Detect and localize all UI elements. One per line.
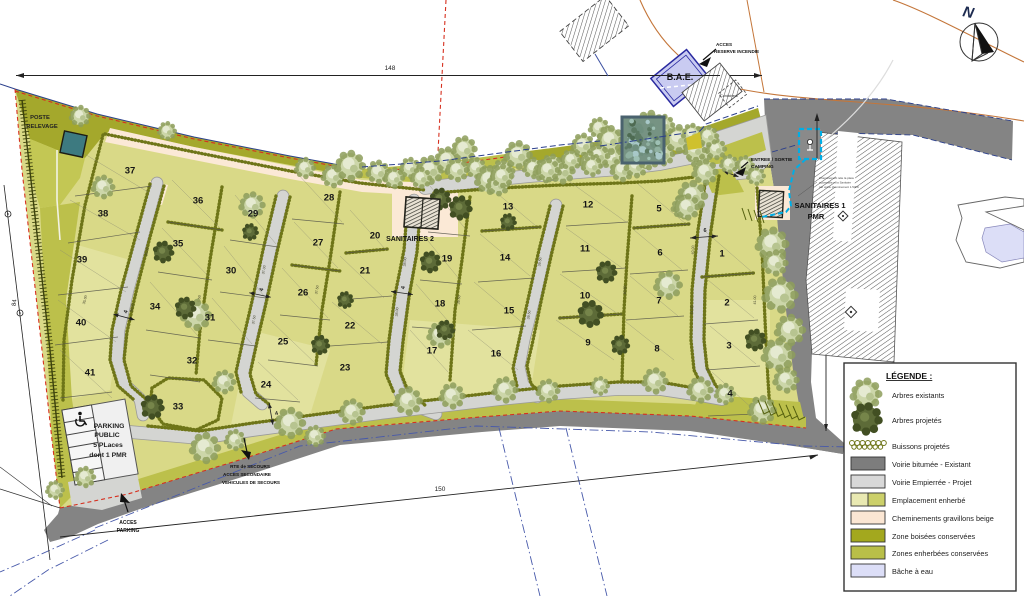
svg-text:Zones enherbées conservées: Zones enherbées conservées (892, 549, 988, 558)
svg-text:accessible et la Sanitaire: accessible et la Sanitaire (819, 181, 851, 185)
svg-text:21: 21 (360, 266, 371, 277)
svg-text:SANITAIRES 1: SANITAIRES 1 (794, 201, 845, 210)
svg-text:40.00: 40.00 (691, 245, 695, 254)
svg-text:Arbres existants: Arbres existants (892, 391, 945, 400)
svg-text:Buissons projetés: Buissons projetés (892, 442, 950, 451)
svg-text:PARKING: PARKING (94, 423, 125, 430)
svg-text:Bâche à eau: Bâche à eau (892, 567, 933, 576)
svg-text:38: 38 (98, 209, 109, 220)
svg-text:40: 40 (76, 318, 87, 329)
svg-text:32: 32 (187, 356, 198, 367)
svg-text:ENTREE / SORTIE: ENTREE / SORTIE (751, 157, 793, 163)
svg-text:36: 36 (193, 196, 204, 207)
svg-text:B.A.E.: B.A.E. (667, 72, 694, 82)
svg-text:Voirie Empierrée - Projet: Voirie Empierrée - Projet (892, 478, 972, 487)
svg-text:ACCES SECONDAIRE: ACCES SECONDAIRE (223, 472, 271, 477)
svg-text:5: 5 (656, 204, 662, 215)
svg-text:Containers: Containers (720, 94, 738, 98)
svg-text:41.00: 41.00 (753, 295, 757, 304)
svg-text:2: 2 (724, 298, 729, 309)
svg-text:dont 1 PMR: dont 1 PMR (89, 452, 126, 459)
svg-text:Voirie bitumée - Existant: Voirie bitumée - Existant (892, 460, 971, 469)
svg-text:22: 22 (345, 321, 356, 332)
svg-text:Emplacement enherbé: Emplacement enherbé (892, 496, 965, 505)
svg-text:SANITAIRES 2: SANITAIRES 2 (386, 236, 434, 243)
svg-text:LÉGENDE :: LÉGENDE : (886, 371, 932, 381)
svg-text:30: 30 (226, 266, 237, 277)
svg-text:4: 4 (727, 389, 733, 400)
svg-text:PMR: PMR (808, 212, 825, 221)
svg-text:19: 19 (442, 254, 453, 265)
svg-text:17: 17 (427, 346, 438, 357)
svg-text:28: 28 (324, 193, 335, 204)
svg-text:RESERVE INCENDIE: RESERVE INCENDIE (714, 49, 759, 54)
svg-text:3: 3 (726, 341, 731, 352)
svg-text:24: 24 (261, 380, 272, 391)
svg-text:Arbres projetés: Arbres projetés (892, 416, 942, 425)
svg-text:ACCES: ACCES (716, 42, 732, 47)
svg-text:25: 25 (278, 337, 289, 348)
svg-text:ACCES: ACCES (119, 520, 137, 526)
svg-text:23: 23 (340, 363, 351, 374)
svg-text:31: 31 (205, 313, 216, 324)
svg-text:VEHICULES DE SECOURS: VEHICULES DE SECOURS (222, 480, 280, 485)
svg-text:PUBLIC: PUBLIC (94, 432, 119, 439)
svg-text:Cheminement relie la place: Cheminement relie la place (819, 176, 854, 180)
svg-text:41.00: 41.00 (690, 305, 694, 314)
svg-text:38.00: 38.00 (395, 307, 400, 316)
svg-text:CAMPING: CAMPING (751, 164, 774, 170)
svg-text:9: 9 (585, 338, 590, 349)
svg-text:26: 26 (298, 288, 309, 299)
svg-text:18: 18 (435, 299, 446, 310)
svg-text:29: 29 (248, 209, 259, 220)
svg-text:Zone boisées conservées: Zone boisées conservées (892, 532, 976, 541)
svg-text:16: 16 (491, 349, 502, 360)
svg-text:6: 6 (703, 228, 706, 234)
svg-text:41: 41 (85, 368, 96, 379)
svg-text:7: 7 (656, 296, 661, 307)
svg-text:27: 27 (313, 238, 324, 249)
svg-text:14: 14 (500, 253, 511, 264)
svg-text:10: 10 (580, 291, 591, 302)
svg-text:8: 8 (654, 344, 659, 355)
svg-text:Cheminements gravillons beige: Cheminements gravillons beige (892, 514, 994, 523)
svg-text:par voirie cheminement 1.5/2%: par voirie cheminement 1.5/2% (819, 185, 859, 189)
svg-text:37: 37 (125, 166, 136, 177)
svg-text:5 PLaces: 5 PLaces (93, 442, 123, 449)
svg-text:38.00: 38.00 (403, 257, 408, 266)
svg-text:20: 20 (370, 231, 381, 242)
svg-text:6: 6 (657, 248, 662, 259)
svg-text:11: 11 (580, 244, 591, 255)
svg-text:12: 12 (583, 200, 594, 211)
svg-text:148: 148 (385, 65, 396, 72)
svg-text:PARKING: PARKING (117, 528, 140, 534)
svg-text:1: 1 (719, 249, 725, 260)
svg-text:33: 33 (173, 402, 184, 413)
svg-text:35: 35 (173, 239, 184, 250)
svg-text:150: 150 (435, 486, 446, 493)
svg-text:40.50: 40.50 (623, 285, 627, 294)
svg-text:34: 34 (150, 302, 161, 313)
svg-text:15: 15 (504, 306, 515, 317)
svg-text:RTE de SECOURS: RTE de SECOURS (230, 464, 270, 469)
svg-text:POSTE: POSTE (30, 115, 50, 121)
svg-text:39: 39 (77, 255, 88, 266)
svg-text:13: 13 (503, 202, 514, 213)
svg-text:RELEVAGE: RELEVAGE (26, 124, 58, 130)
